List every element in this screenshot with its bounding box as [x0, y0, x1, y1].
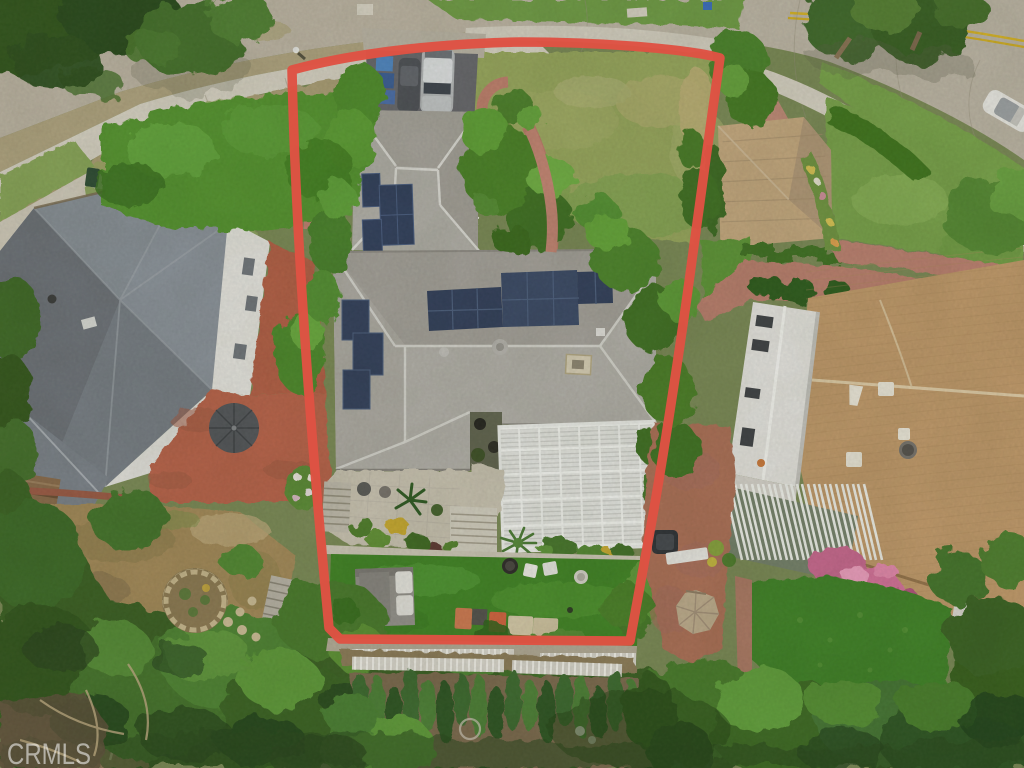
- svg-text:CRMLS: CRMLS: [7, 738, 91, 768]
